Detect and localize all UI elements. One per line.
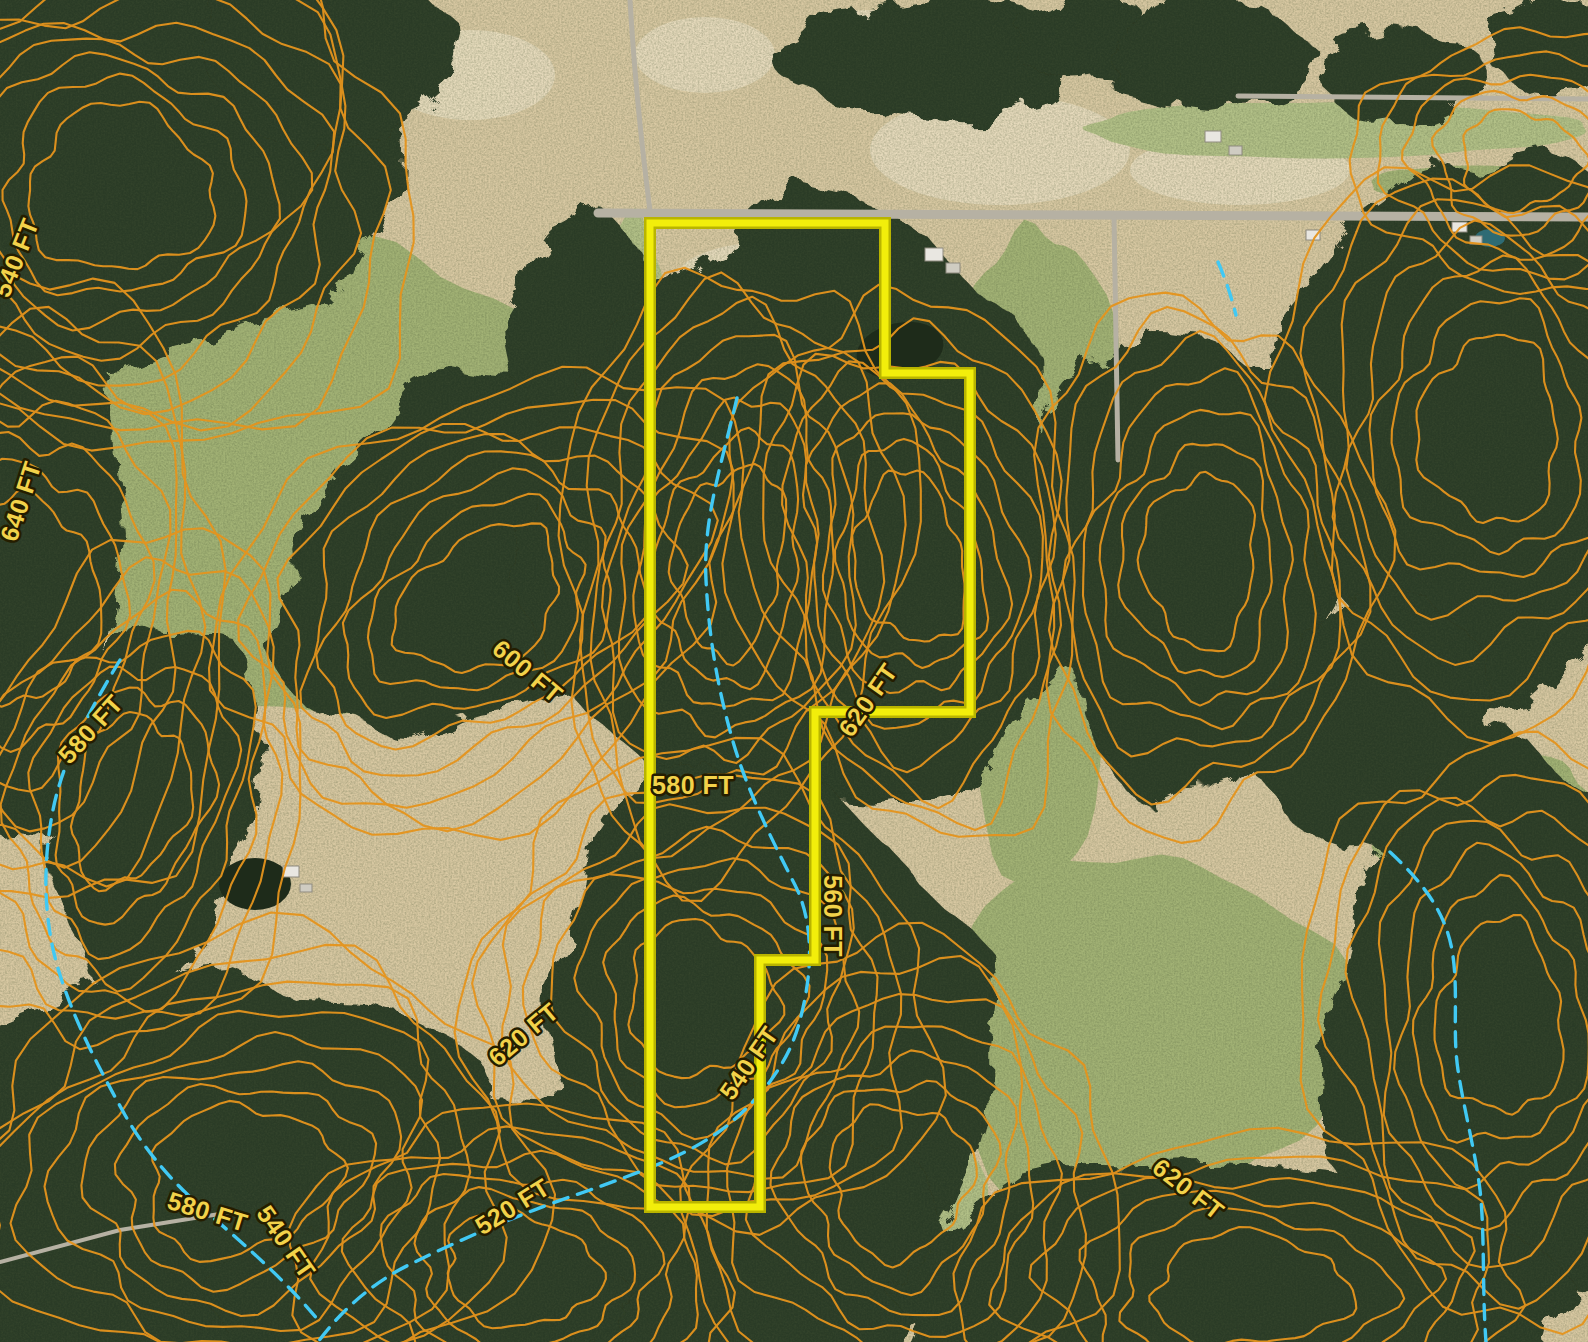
map-viewport[interactable]: 540 FT640 FT580 FT600 FT580 FT620 FT560 …: [0, 0, 1588, 1342]
road-main-east: [598, 213, 1588, 217]
building: [925, 248, 943, 261]
contour-elevation-label: 560 FT: [819, 875, 847, 957]
building: [946, 263, 960, 273]
contour-elevation-label: 580 FT: [652, 771, 734, 799]
building: [1229, 146, 1242, 155]
map-canvas[interactable]: 540 FT640 FT580 FT600 FT580 FT620 FT560 …: [0, 0, 1588, 1342]
building: [300, 884, 312, 892]
building: [1205, 131, 1221, 142]
photo-grain: [0, 0, 1588, 1342]
